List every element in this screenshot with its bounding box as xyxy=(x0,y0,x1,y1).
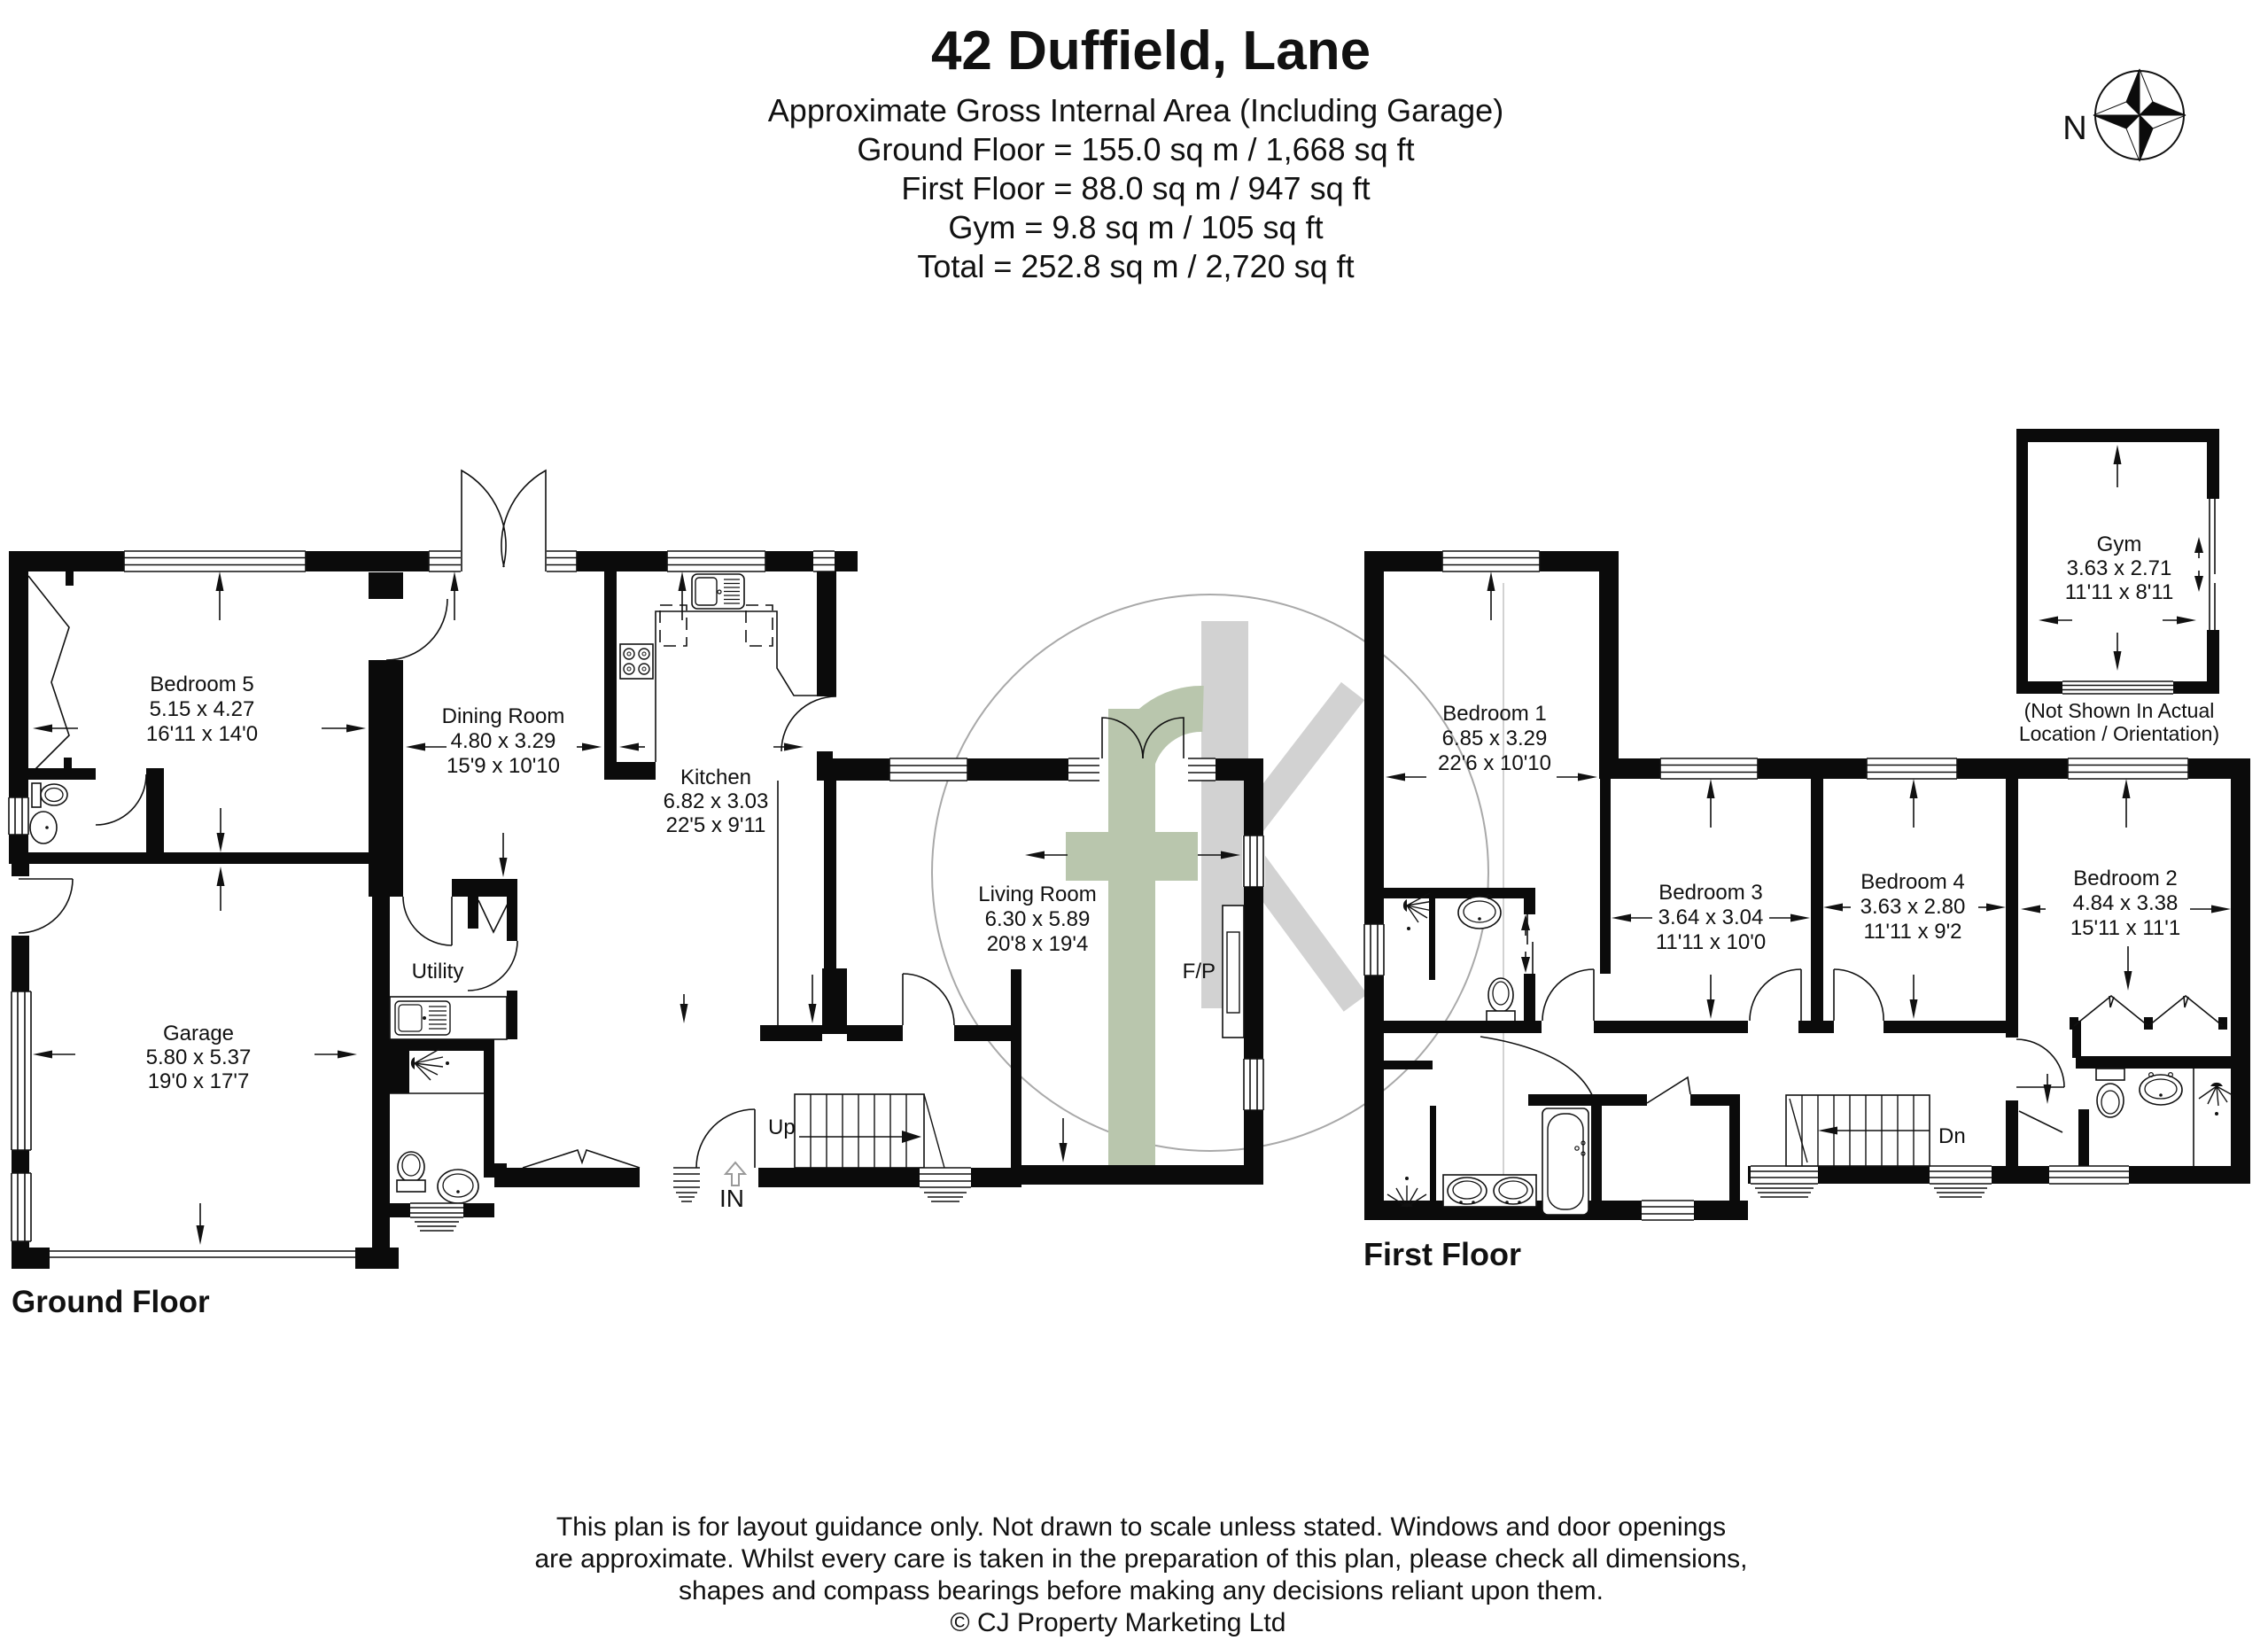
svg-text:F/P: F/P xyxy=(1183,960,1216,983)
svg-text:19'0 x 17'7: 19'0 x 17'7 xyxy=(148,1069,250,1093)
svg-text:22'5 x 9'11: 22'5 x 9'11 xyxy=(666,813,766,837)
svg-text:15'11 x 11'1: 15'11 x 11'1 xyxy=(2070,916,2180,940)
svg-text:11'11 x 9'2: 11'11 x 9'2 xyxy=(1863,920,1961,944)
svg-text:4.80 x 3.29: 4.80 x 3.29 xyxy=(451,729,556,753)
svg-text:Bedroom 4: Bedroom 4 xyxy=(1860,870,1964,894)
svg-text:are approximate. Whilst every: are approximate. Whilst every care is ta… xyxy=(534,1544,1747,1574)
svg-text:Bedroom 1: Bedroom 1 xyxy=(1442,702,1546,726)
svg-text:6.82 x 3.03: 6.82 x 3.03 xyxy=(664,789,769,813)
svg-text:22'6 x 10'10: 22'6 x 10'10 xyxy=(1438,751,1551,775)
svg-text:Gym = 9.8 sq m / 105 sq ft: Gym = 9.8 sq m / 105 sq ft xyxy=(948,209,1323,245)
svg-text:4.84 x 3.38: 4.84 x 3.38 xyxy=(2073,891,2179,915)
svg-text:Garage: Garage xyxy=(163,1022,234,1046)
svg-text:shapes and compass bearings be: shapes and compass bearings before makin… xyxy=(679,1576,1604,1605)
svg-text:Location / Orientation): Location / Orientation) xyxy=(2019,722,2219,745)
svg-text:Dn: Dn xyxy=(1938,1124,1966,1148)
svg-text:Ground Floor = 155.0 sq m / 1,: Ground Floor = 155.0 sq m / 1,668 sq ft xyxy=(857,131,1414,167)
svg-text:Kitchen: Kitchen xyxy=(680,766,751,789)
svg-text:3.63 x 2.71: 3.63 x 2.71 xyxy=(2067,556,2172,580)
svg-text:42 Duffield, Lane: 42 Duffield, Lane xyxy=(931,20,1371,82)
svg-text:Bedroom 5: Bedroom 5 xyxy=(150,672,253,696)
svg-text:5.80 x 5.37: 5.80 x 5.37 xyxy=(146,1046,252,1069)
svg-text:This plan is for layout guidan: This plan is for layout guidance only. N… xyxy=(556,1512,1726,1542)
svg-text:3.64 x 3.04: 3.64 x 3.04 xyxy=(1658,906,1764,929)
svg-text:5.15 x 4.27: 5.15 x 4.27 xyxy=(150,697,255,721)
svg-text:N: N xyxy=(2062,110,2086,147)
svg-text:Approximate Gross Internal Are: Approximate Gross Internal Area (Includi… xyxy=(768,92,1503,128)
svg-text:Ground Floor: Ground Floor xyxy=(12,1285,210,1319)
svg-text:First Floor = 88.0 sq m / 947: First Floor = 88.0 sq m / 947 sq ft xyxy=(901,170,1370,206)
svg-text:Dining Room: Dining Room xyxy=(442,704,565,728)
svg-text:Bedroom 2: Bedroom 2 xyxy=(2073,867,2177,890)
svg-text:Bedroom 3: Bedroom 3 xyxy=(1658,881,1762,905)
svg-text:IN: IN xyxy=(719,1185,744,1212)
svg-text:Living Room: Living Room xyxy=(978,882,1096,906)
svg-text:Total = 252.8 sq m / 2,720 sq: Total = 252.8 sq m / 2,720 sq ft xyxy=(917,248,1354,284)
svg-text:(Not Shown In Actual: (Not Shown In Actual xyxy=(2024,699,2215,722)
svg-text:6.30 x 5.89: 6.30 x 5.89 xyxy=(985,907,1091,931)
svg-text:15'9 x 10'10: 15'9 x 10'10 xyxy=(447,754,560,778)
svg-text:Gym: Gym xyxy=(2097,532,2142,556)
svg-text:First Floor: First Floor xyxy=(1363,1236,1521,1272)
svg-text:Utility: Utility xyxy=(412,960,464,983)
svg-text:11'11 x 10'0: 11'11 x 10'0 xyxy=(1656,930,1766,954)
svg-text:3.63 x 2.80: 3.63 x 2.80 xyxy=(1860,895,1966,919)
svg-text:20'8 x 19'4: 20'8 x 19'4 xyxy=(987,932,1089,956)
svg-text:© CJ Property Marketing Ltd: © CJ Property Marketing Ltd xyxy=(951,1608,1286,1637)
svg-text:16'11 x 14'0: 16'11 x 14'0 xyxy=(146,722,258,746)
svg-text:11'11 x 8'11: 11'11 x 8'11 xyxy=(2065,580,2174,604)
svg-text:6.85 x 3.29: 6.85 x 3.29 xyxy=(1442,727,1548,750)
svg-text:Up: Up xyxy=(768,1116,796,1139)
